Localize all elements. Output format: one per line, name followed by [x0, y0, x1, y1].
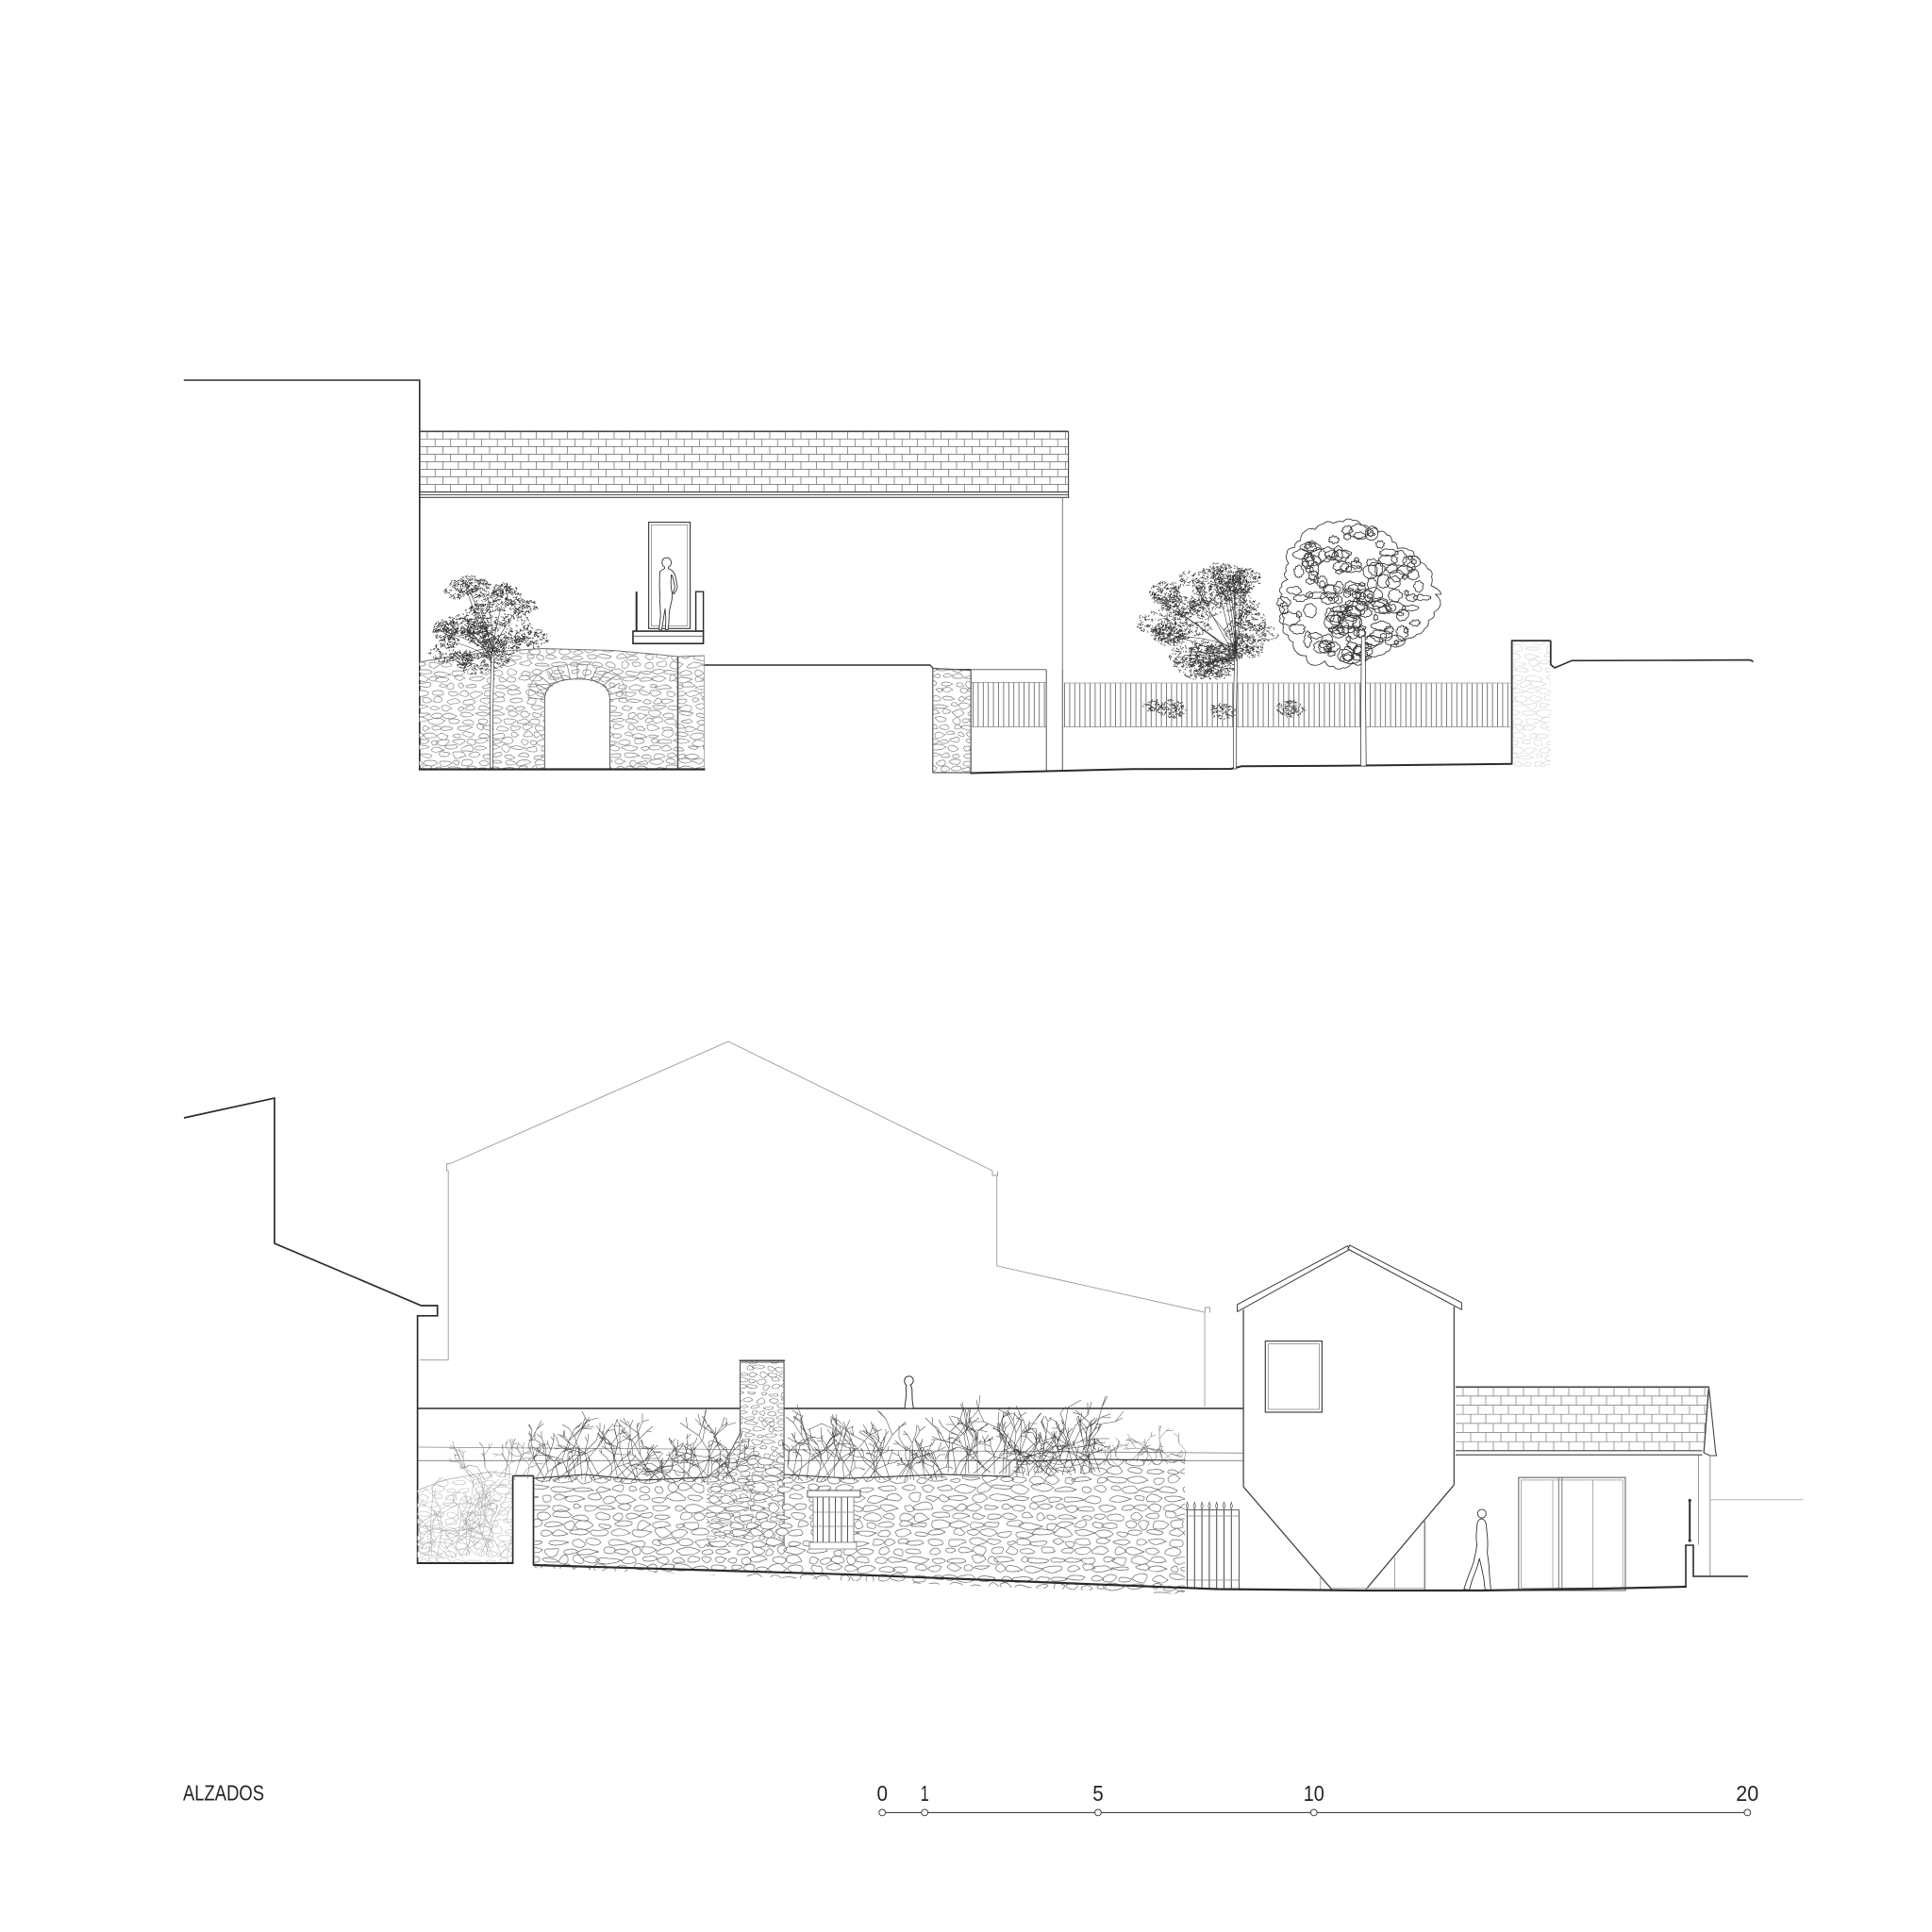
svg-text:1: 1 [921, 1781, 929, 1806]
svg-text:ALZADOS: ALZADOS [183, 1781, 264, 1806]
svg-text:10: 10 [1304, 1781, 1324, 1806]
svg-text:20: 20 [1736, 1781, 1758, 1806]
svg-text:0: 0 [877, 1781, 889, 1806]
svg-text:5: 5 [1092, 1781, 1104, 1806]
